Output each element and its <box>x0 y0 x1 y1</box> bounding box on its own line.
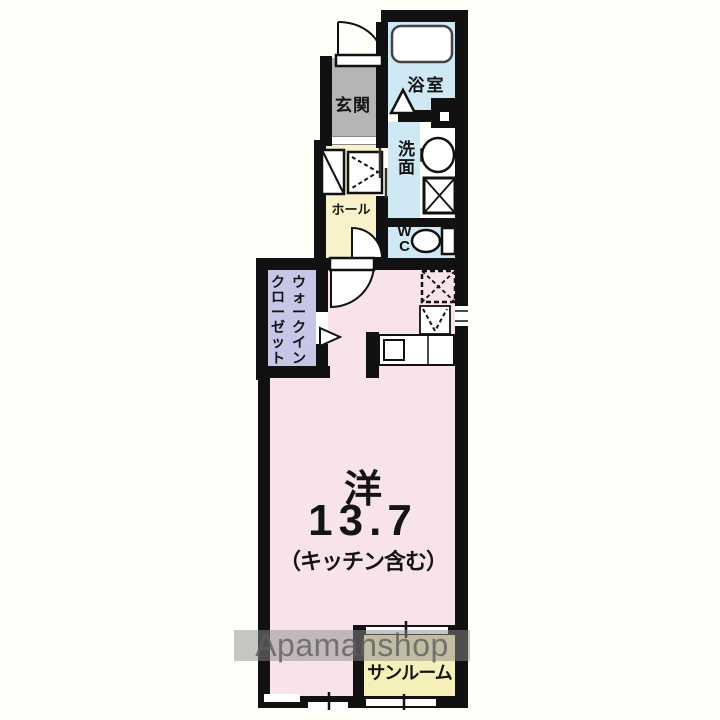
wc-door-arc <box>352 228 382 258</box>
bathroom-label: 浴室 <box>398 71 455 96</box>
pipe-space-notch <box>440 112 449 121</box>
walk-in-closet-label: クローゼット ウォークイン <box>271 275 308 366</box>
hall-storage-icon <box>348 152 382 193</box>
window-icon <box>455 306 468 326</box>
refrigerator-icon <box>422 271 455 302</box>
toilet-icon <box>412 228 455 254</box>
window-icon <box>264 692 348 710</box>
bathtub-icon <box>392 26 452 62</box>
watermark-text: Apamanshop <box>255 630 449 661</box>
wc-label: W C <box>396 224 413 254</box>
washing-machine-icon <box>424 178 455 213</box>
washroom-label: 洗面 <box>397 141 416 178</box>
main-room-note: （キッチン含む） <box>258 544 468 576</box>
genkan-label: 玄関 <box>330 91 376 116</box>
washbasin-icon <box>421 138 454 172</box>
shoe-cabinet-icon <box>322 150 344 194</box>
floor-plan: 玄関 浴室 洗面 ホール W C クローゼット ウォークイン 洋 13.7 （キ… <box>0 0 720 720</box>
room-door-arc <box>330 258 374 307</box>
window-icon <box>366 694 436 710</box>
closet-door-triangle-icon <box>316 312 340 346</box>
watermark-band: Apamanshop <box>234 630 470 661</box>
entrance-door-arc <box>336 22 382 66</box>
stove-icon <box>420 306 450 334</box>
main-room-size: 13.7 <box>268 496 458 546</box>
walk-in-closet-label-left-column: クローゼット <box>271 275 287 366</box>
hall-label: ホール <box>326 199 376 218</box>
walk-in-closet-label-right-column: ウォークイン <box>292 275 308 366</box>
kitchen-sink-icon <box>384 336 428 364</box>
